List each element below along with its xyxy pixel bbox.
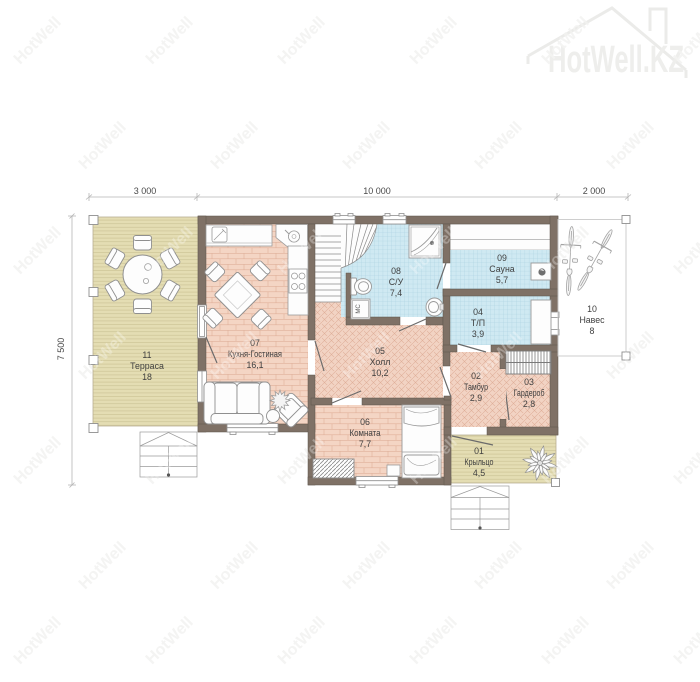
svg-text:3,9: 3,9	[472, 329, 484, 339]
svg-text:7 500: 7 500	[56, 338, 66, 361]
svg-text:7,7: 7,7	[359, 439, 371, 449]
svg-text:2 000: 2 000	[583, 186, 606, 196]
svg-text:С/У: С/У	[389, 277, 404, 287]
svg-text:3 000: 3 000	[134, 186, 157, 196]
svg-text:2,8: 2,8	[523, 399, 535, 409]
svg-text:09: 09	[497, 253, 507, 263]
svg-text:10: 10	[587, 304, 597, 314]
svg-text:Терраса: Терраса	[130, 361, 164, 371]
svg-text:Крыльцо: Крыльцо	[465, 457, 494, 467]
svg-text:04: 04	[473, 307, 483, 317]
svg-text:8: 8	[590, 326, 595, 336]
svg-text:11: 11	[142, 350, 151, 360]
svg-text:10 000: 10 000	[363, 186, 391, 196]
svg-text:18: 18	[142, 372, 152, 382]
svg-text:01: 01	[474, 446, 484, 456]
svg-text:Тамбур: Тамбур	[464, 382, 488, 392]
svg-text:Сауна: Сауна	[489, 264, 515, 274]
svg-text:Гардероб: Гардероб	[514, 388, 545, 398]
svg-text:2,9: 2,9	[470, 393, 482, 403]
svg-text:08: 08	[391, 266, 401, 276]
svg-text:МС: МС	[356, 304, 362, 314]
svg-text:16,1: 16,1	[246, 360, 263, 370]
svg-text:5,7: 5,7	[496, 275, 508, 285]
svg-text:06: 06	[360, 417, 370, 427]
svg-text:Навес: Навес	[579, 315, 605, 325]
svg-text:7,4: 7,4	[390, 288, 402, 298]
svg-text:03: 03	[524, 377, 534, 387]
svg-text:Комната: Комната	[350, 428, 381, 438]
svg-text:10,2: 10,2	[371, 368, 388, 378]
svg-text:Т/П: Т/П	[471, 318, 485, 328]
svg-text:4,5: 4,5	[473, 468, 485, 478]
